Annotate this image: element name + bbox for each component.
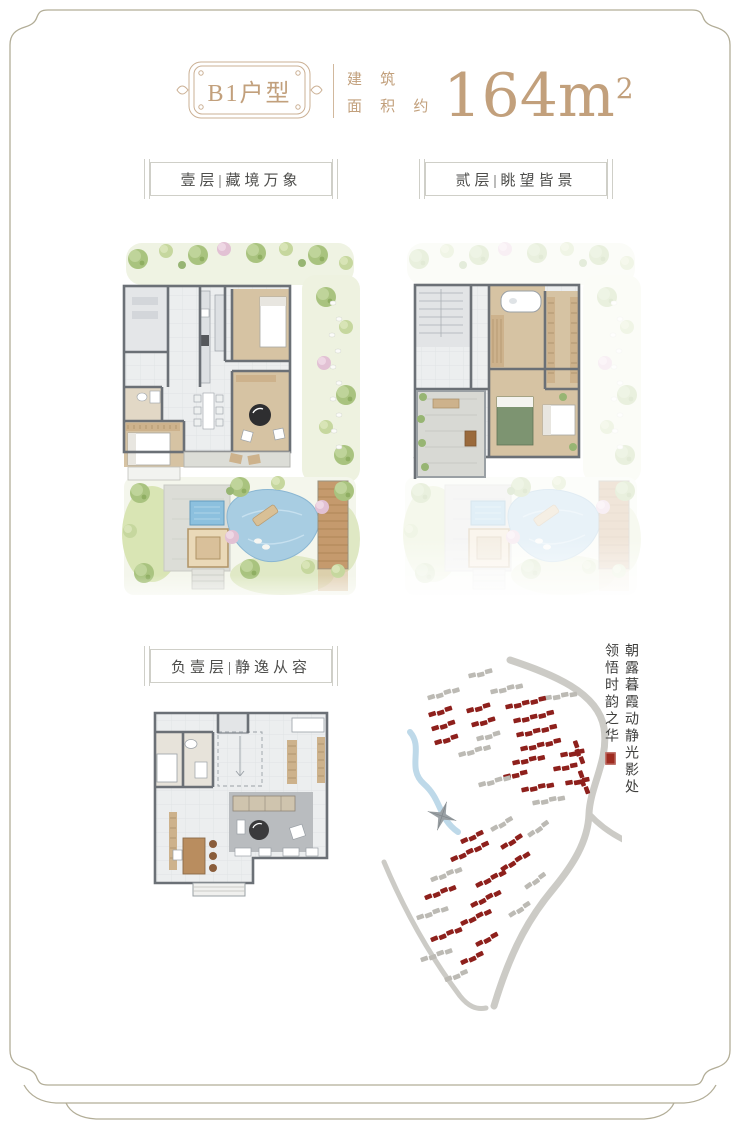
unit-type-label: B1户型 — [176, 57, 323, 123]
floor-plan-second-floor — [393, 239, 646, 612]
floor-plan-first-floor — [112, 239, 365, 612]
section-label-basement: 负壹层|静逸从容 — [150, 649, 332, 683]
area-prefix-line1: 建 筑 — [347, 68, 435, 89]
house-second-floor — [415, 285, 579, 479]
building-area: 建 筑 面 积 约 164m2 — [347, 60, 634, 124]
house-first-floor — [124, 286, 290, 480]
area-prefix-label: 建 筑 面 积 约 — [347, 68, 435, 116]
site-map — [372, 656, 622, 1012]
area-value: 164m2 — [443, 59, 633, 126]
calligraphy-right-column: 朝露暮霞动静光影处 — [620, 643, 640, 818]
house-basement — [155, 713, 327, 896]
section-label-floor2: 贰层|眺望皆景 — [425, 162, 607, 196]
calligraphy: 朝露暮霞动静光影处 领悟时韵之华 — [600, 643, 640, 818]
road-lower — [384, 862, 486, 1009]
header-divider — [333, 64, 334, 118]
area-prefix-line2: 面 积 约 — [347, 95, 435, 116]
seal-stamp-icon — [605, 752, 616, 765]
calligraphy-left-column: 领悟时韵之华 — [600, 643, 620, 818]
site-buildings — [416, 668, 590, 983]
area-exponent: 2 — [616, 72, 634, 105]
floor-plan-basement — [143, 692, 353, 898]
river — [410, 732, 458, 832]
section-label-floor1: 壹层|藏境万象 — [150, 162, 332, 196]
